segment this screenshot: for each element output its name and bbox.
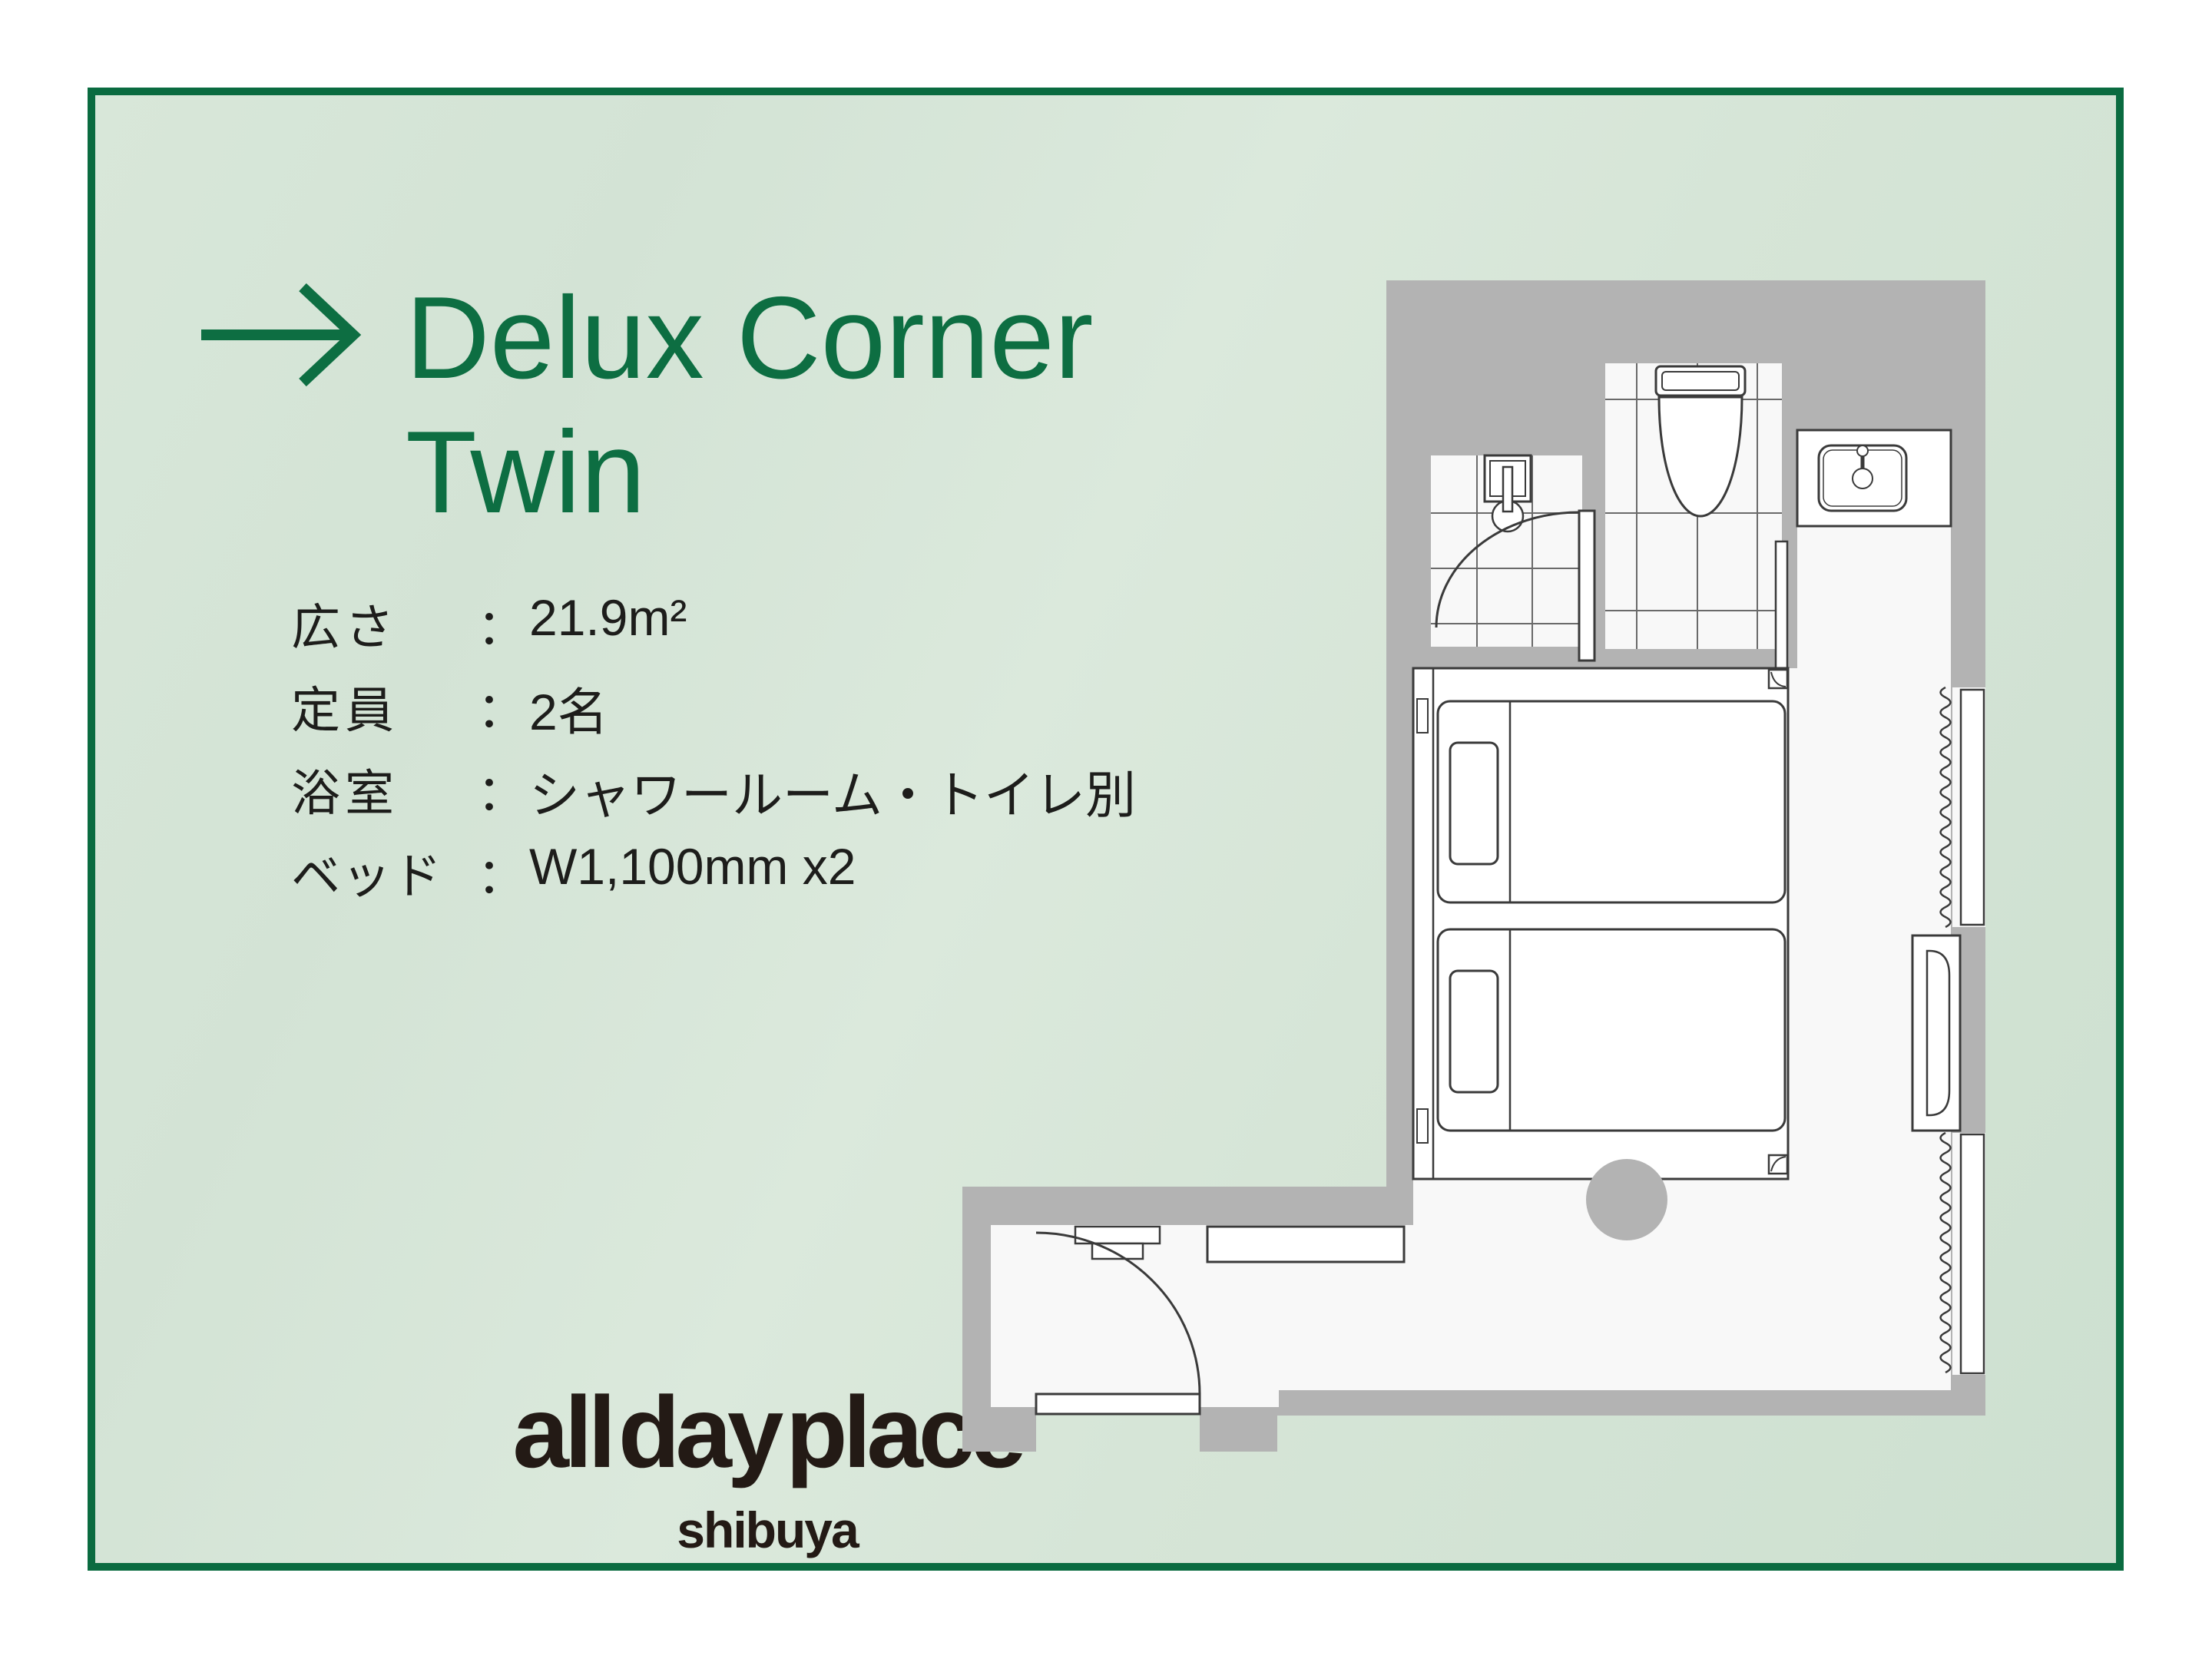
window-1-frame: [1961, 690, 1984, 925]
spec-colon: ：: [477, 588, 526, 659]
spec-label: 広さ: [291, 588, 399, 659]
spec-label: ベッド: [291, 837, 443, 908]
room-info-poster: { "card": { "border_color": "#0a6b40", "…: [0, 0, 2212, 1659]
sink-area: [1797, 430, 1951, 526]
spec-label: 定員: [291, 671, 399, 742]
shower-door-leaf: [1579, 511, 1594, 661]
hotel-logo-location: shibuya: [460, 1505, 1075, 1555]
floor-plan: [960, 280, 1985, 1452]
spec-colon: ：: [477, 837, 526, 908]
twin-beds: [1413, 668, 1788, 1179]
corridor-shelf: [1207, 1227, 1404, 1262]
shower-handle-icon: [1503, 467, 1512, 512]
wall-mirror-door: [1927, 951, 1949, 1115]
spec-value: 21.9m²: [529, 588, 687, 647]
spec-colon: ：: [477, 754, 526, 825]
window-2-frame: [1961, 1134, 1984, 1373]
bed-1-pillow: [1450, 743, 1498, 864]
spec-colon: ：: [477, 671, 526, 742]
entrance-door-leaf: [1036, 1394, 1200, 1414]
spec-label: 浴室: [291, 754, 399, 825]
spec-value: W1,100mm x2: [529, 837, 856, 896]
headboard-switch: [1417, 699, 1428, 733]
headboard-switch: [1417, 1109, 1428, 1143]
bed-2-pillow: [1450, 971, 1498, 1092]
spec-value: 2名: [529, 671, 608, 745]
toilet-tank-icon: [1656, 366, 1745, 396]
round-table: [1586, 1159, 1667, 1240]
room-info-card: Delux Corner Twin 広さ ： 21.9m² 定員 ： 2名 浴室…: [88, 88, 2124, 1571]
